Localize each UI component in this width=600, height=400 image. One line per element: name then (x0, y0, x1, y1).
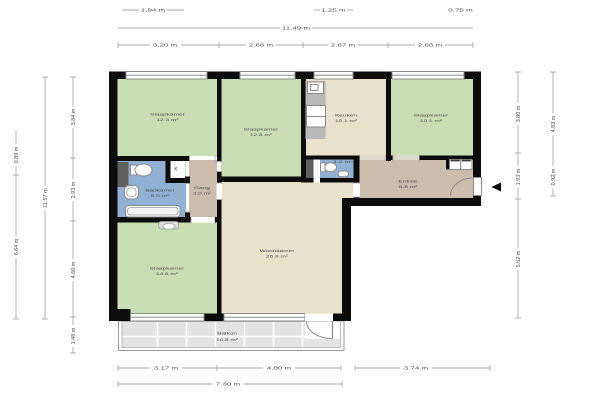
svg-text:1.25 m: 1.25 m (321, 8, 345, 13)
svg-text:Entree: Entree (398, 180, 417, 184)
svg-text:0.89 m: 0.89 m (14, 146, 20, 163)
svg-text:1.94 m: 1.94 m (141, 8, 165, 13)
svg-text:2.93 m: 2.93 m (71, 181, 77, 198)
svg-text:11.49 m: 11.49 m (282, 26, 310, 31)
svg-text:1.93 m: 1.93 m (516, 168, 522, 185)
svg-text:Badkamer: Badkamer (145, 189, 175, 193)
svg-text:1.2 m²: 1.2 m² (333, 160, 353, 164)
svg-text:Woonkamer: Woonkamer (260, 249, 295, 253)
svg-text:0.92 m: 0.92 m (551, 168, 557, 185)
svg-text:3.74 m: 3.74 m (404, 366, 428, 371)
svg-text:4.00 m: 4.00 m (267, 366, 291, 371)
svg-text:3.20 m: 3.20 m (153, 43, 177, 48)
svg-text:10.1 m²: 10.1 m² (335, 119, 357, 123)
svg-text:Keuken: Keuken (335, 114, 357, 118)
svg-text:14.6 m²: 14.6 m² (156, 272, 178, 276)
svg-text:4.60 m: 4.60 m (71, 261, 77, 278)
svg-text:6.64 m: 6.64 m (14, 238, 20, 255)
svg-text:2.66 m: 2.66 m (249, 43, 273, 48)
svg-text:11.57 m: 11.57 m (43, 188, 49, 208)
svg-text:12.8 m²: 12.8 m² (250, 133, 272, 137)
svg-text:3.17 m: 3.17 m (154, 366, 178, 371)
svg-text:Slaapkamer: Slaapkamer (414, 114, 449, 118)
svg-text:1.48 m: 1.48 m (71, 327, 77, 344)
svg-text:Slaapkamer: Slaapkamer (150, 113, 185, 117)
svg-text:5.0 m²: 5.0 m² (151, 194, 170, 198)
svg-text:4.83 m: 4.83 m (551, 115, 557, 132)
svg-text:7.30 m: 7.30 m (216, 382, 240, 387)
svg-text:3.84 m: 3.84 m (71, 108, 77, 125)
svg-text:Slaapkamer: Slaapkamer (150, 267, 185, 271)
svg-text:Gang: Gang (194, 186, 210, 190)
svg-text:0.75 m: 0.75 m (448, 8, 472, 13)
svg-text:12.3 m²: 12.3 m² (156, 118, 178, 122)
svg-text:Balkon: Balkon (217, 332, 237, 336)
svg-text:5.52 m: 5.52 m (516, 250, 522, 267)
svg-text:3.80 m: 3.80 m (516, 105, 522, 122)
svg-text:6.8 m²: 6.8 m² (399, 185, 418, 189)
svg-text:26.9 m²: 26.9 m² (266, 255, 288, 259)
svg-text:2.67 m: 2.67 m (331, 43, 355, 48)
svg-text:2.66 m: 2.66 m (418, 43, 442, 48)
svg-text:10.1 m²: 10.1 m² (420, 119, 442, 123)
svg-text:3.0 m²: 3.0 m² (193, 192, 212, 196)
svg-text:Slaapkamer: Slaapkamer (244, 128, 279, 132)
svg-text:10.8 m²: 10.8 m² (216, 338, 238, 342)
